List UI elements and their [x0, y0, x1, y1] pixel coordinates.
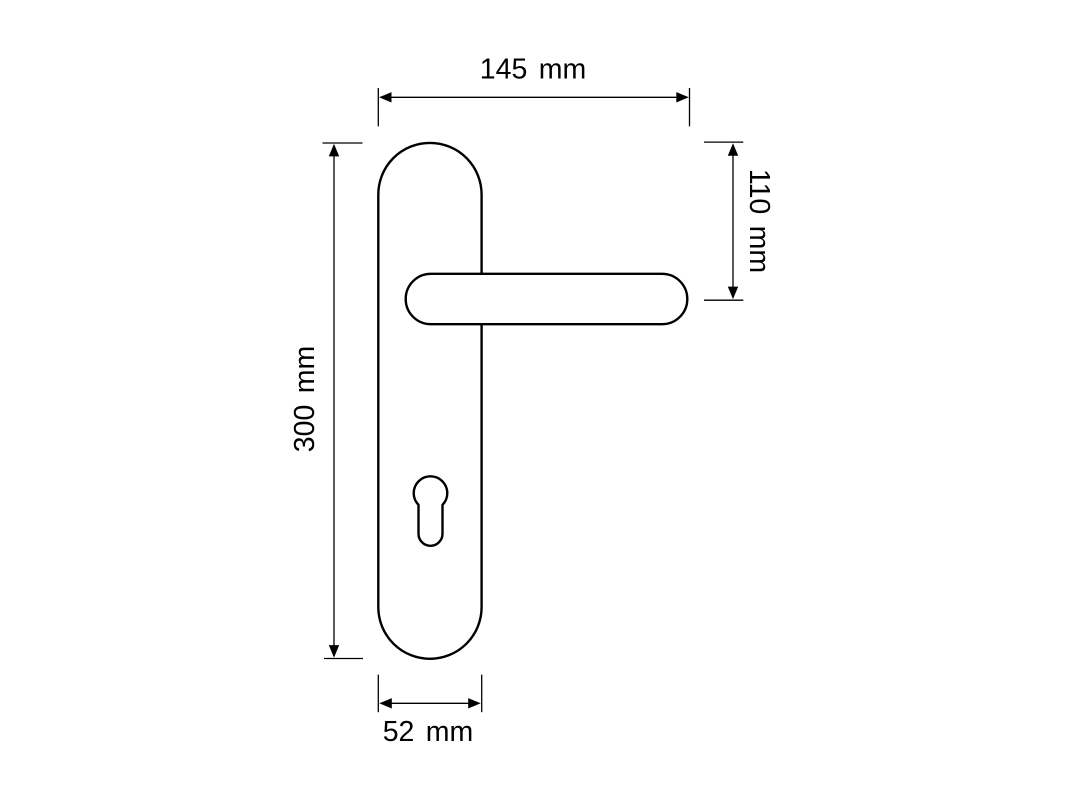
svg-text:52 mm: 52 mm [383, 716, 474, 748]
svg-text:145 mm: 145 mm [480, 54, 586, 86]
svg-text:300 mm: 300 mm [289, 346, 321, 452]
svg-text:110 mm: 110 mm [743, 169, 775, 273]
